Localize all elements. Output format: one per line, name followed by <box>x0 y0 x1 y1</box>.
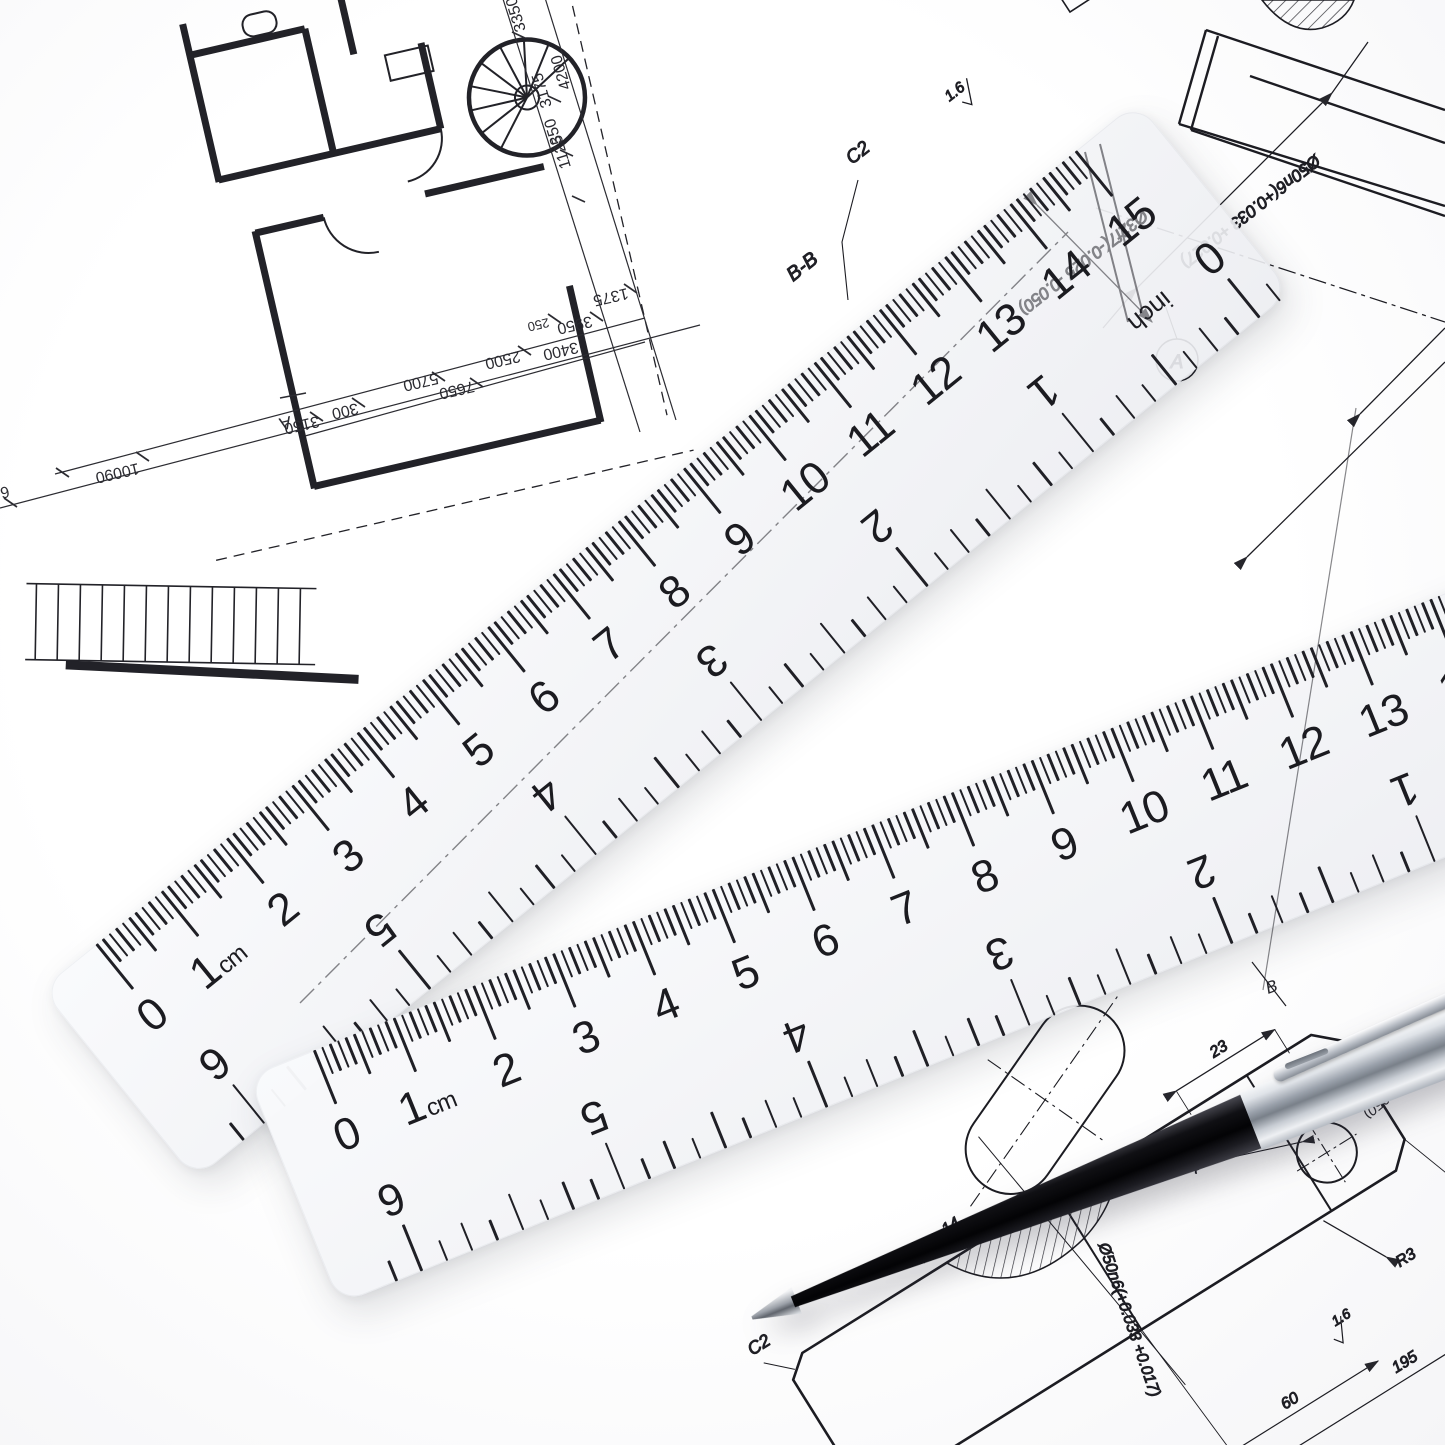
ruler-tick <box>672 905 690 946</box>
ruler-tick <box>206 854 226 878</box>
ruler-tick <box>605 531 625 555</box>
ruler-tick <box>905 288 925 312</box>
ruler-tick <box>507 1193 524 1230</box>
ruler-tick <box>1022 193 1042 217</box>
ruler-tick <box>726 719 742 738</box>
ruler-tick <box>918 277 938 301</box>
ruler-tick <box>481 631 501 655</box>
ruler-tick <box>187 869 207 893</box>
ruler-tick <box>272 801 292 825</box>
ruler-tick <box>840 341 860 365</box>
ruler-tick <box>1197 933 1208 954</box>
ruler-tick <box>1212 897 1233 944</box>
ruler-tick <box>494 621 514 645</box>
ruler-tick <box>1169 936 1183 965</box>
ruler-tick <box>872 314 892 338</box>
ruler-tick <box>657 489 677 513</box>
ruler-tick <box>565 563 585 587</box>
ruler-tick <box>435 668 455 692</box>
ruler-tick <box>807 367 827 391</box>
ruler-tick <box>1070 744 1088 785</box>
ruler-tick <box>526 594 546 618</box>
ruler-tick <box>539 1199 550 1220</box>
ruler-tick <box>539 584 559 608</box>
ruler-tick <box>409 690 429 714</box>
ruler-number: 0 <box>126 987 177 1043</box>
ruler-tick <box>827 351 847 375</box>
roughness-mark: 1.6 <box>1322 1305 1362 1346</box>
ruler-tick <box>357 732 395 779</box>
photo-scene: 3350 4200 3175 350 1125 1375 250 3950 34… <box>0 0 1445 1445</box>
ruler-tick <box>1198 327 1219 352</box>
ruler-number: 10 <box>770 451 840 522</box>
ruler-number: 4 <box>775 1007 818 1065</box>
ruler-number: 5 <box>724 945 766 1002</box>
ruler-tick <box>1310 647 1328 688</box>
ruler-tick <box>148 901 168 925</box>
ruler-tick <box>866 596 887 621</box>
ruler-tick <box>787 383 807 407</box>
ruler-tick <box>895 547 928 587</box>
ruler-tick <box>387 1260 398 1281</box>
ruler-number: 13 <box>966 292 1036 363</box>
dimension-label: 2500 <box>483 347 522 372</box>
ruler-tick <box>592 937 610 978</box>
ruler-tick <box>1299 892 1310 913</box>
ruler-tick <box>1016 198 1036 222</box>
ruler-tick <box>1010 979 1031 1026</box>
ruler-tick <box>343 743 363 767</box>
ruler-tick <box>533 589 553 613</box>
ruler-number: 14 <box>1031 239 1101 310</box>
ruler-tick <box>448 658 468 682</box>
ruler-number: 14 <box>1431 650 1445 716</box>
svg-text:1.6: 1.6 <box>1328 1305 1353 1329</box>
ruler-tick <box>246 822 266 846</box>
ruler-cm-unit: cm <box>212 940 252 980</box>
ruler-tick <box>951 251 971 275</box>
ruler-tick <box>1045 994 1056 1015</box>
ruler-number: 6 <box>518 670 569 726</box>
ruler-tick <box>640 1158 651 1179</box>
ruler-tick <box>975 518 991 537</box>
ruler-tick <box>1389 615 1407 656</box>
ruler-tick <box>1075 150 1113 197</box>
ruler-tick <box>317 764 337 788</box>
ruler-tick <box>774 394 794 418</box>
ruler-tick <box>865 1059 879 1088</box>
ruler-number: 1 <box>1383 761 1426 819</box>
ruler-tick <box>350 737 370 761</box>
dimension-label: 3350 <box>503 0 530 34</box>
ruler-tick <box>644 499 664 523</box>
ruler-number: 8 <box>964 848 1006 905</box>
ruler-tick <box>1224 317 1240 336</box>
dimension-label: 3400 <box>541 338 580 363</box>
dimension-label: 300 <box>330 399 360 422</box>
ruler-tick <box>135 912 155 936</box>
ruler-tick <box>590 1179 601 1200</box>
plan-dimension-lines <box>0 0 700 508</box>
ruler-tick <box>934 552 950 571</box>
ruler-tick <box>213 848 233 872</box>
ruler-tick <box>229 1122 245 1141</box>
ruler-tick <box>513 605 533 629</box>
ruler-number: 3 <box>565 1009 607 1066</box>
ruler-number: 0 <box>326 1106 368 1163</box>
ruler-tick <box>768 399 788 423</box>
ruler-tick <box>535 864 556 889</box>
ruler-tick <box>467 642 487 666</box>
ruler-tick <box>507 610 527 634</box>
ruler-tick <box>696 457 716 481</box>
ruler-tick <box>1248 913 1259 934</box>
ruler-tick <box>755 409 775 433</box>
ruler-tick <box>174 880 194 904</box>
ruler-tick <box>670 478 690 502</box>
ruler-tick <box>552 573 590 620</box>
ruler-tick <box>592 542 612 566</box>
ruler-tick <box>239 827 259 851</box>
ruler-number: 5 <box>573 1088 616 1146</box>
ruler-tick <box>866 320 886 344</box>
ruler-tick <box>461 647 481 671</box>
ruler-tick <box>729 431 749 455</box>
ruler-tick <box>1068 977 1082 1006</box>
ruler-tick <box>879 309 917 356</box>
ruler-tick <box>807 1060 828 1107</box>
ruler-tick <box>1400 851 1411 872</box>
ruler-tick <box>487 626 525 673</box>
ruler-tick <box>1270 895 1284 924</box>
ruler-tick <box>438 1240 449 1261</box>
ruler-tick <box>851 619 867 638</box>
ruler-tick <box>701 730 722 755</box>
ruler-tick <box>415 684 435 708</box>
ruler-tick <box>892 585 908 604</box>
ruler-tick <box>813 362 851 409</box>
ruler-tick <box>892 298 912 322</box>
ruler-tick <box>395 988 411 1007</box>
ruler-number: 12 <box>1271 715 1335 781</box>
ruler-tick <box>831 840 849 881</box>
ruler-tick <box>970 235 990 259</box>
ruler-tick <box>598 536 618 560</box>
ruler-tick <box>1227 278 1260 318</box>
ruler-tick <box>783 663 804 688</box>
ruler-tick <box>618 797 639 822</box>
ruler-tick <box>95 943 133 990</box>
ruler-tick <box>1068 156 1088 180</box>
ruler-tick <box>433 1002 451 1043</box>
ruler-tick <box>108 933 128 957</box>
dimension-label: 1375 <box>591 284 630 309</box>
ruler-tick <box>311 769 331 793</box>
ruler-tick <box>912 1030 929 1067</box>
ruler-tick <box>428 674 448 698</box>
ruler-tick <box>370 721 390 745</box>
ruler-tick <box>285 790 305 814</box>
ruler-tick <box>402 695 422 719</box>
ruler-tick <box>809 652 825 671</box>
svg-text:1.6: 1.6 <box>941 78 968 105</box>
ruler-tick <box>436 954 452 973</box>
ruler-number: 5 <box>453 723 504 779</box>
ruler-number: 2 <box>1180 843 1223 901</box>
ruler-number: 12 <box>900 345 970 416</box>
ruler-tick <box>564 815 597 855</box>
ruler-tick <box>141 906 161 930</box>
ruler-tick <box>1061 412 1094 452</box>
feature-control-frame: Ø0.02 <box>1050 0 1164 12</box>
dim-60-label: 60 <box>1278 1389 1302 1413</box>
ruler-number: 2 <box>485 1041 527 1098</box>
ruler-tick <box>637 505 657 529</box>
roughness-mark: 1.6 <box>941 74 981 114</box>
ruler-tick <box>546 579 566 603</box>
ruler-tick <box>519 887 535 906</box>
ruler-tick <box>252 817 272 841</box>
ruler-tick <box>353 1034 371 1075</box>
stair-flight-icon <box>25 584 316 665</box>
ruler-tick <box>1182 350 1198 369</box>
section-mark-a: A <box>277 412 293 434</box>
ruler-tick <box>219 843 239 867</box>
ruler-tick <box>991 776 1009 817</box>
ruler-tick <box>885 304 905 328</box>
ruler-tick <box>115 928 135 952</box>
ruler-tick <box>949 529 970 554</box>
ruler-tick <box>1016 484 1032 503</box>
ruler-tick <box>602 820 618 839</box>
ruler-tick <box>709 446 729 470</box>
dimension-label: 10090 <box>94 459 141 486</box>
dim-23-label: 23 <box>1206 1038 1231 1062</box>
ruler-number: 3 <box>322 829 373 885</box>
ruler-tick <box>1055 166 1075 190</box>
ruler-number: 1cm <box>179 924 255 1000</box>
ruler-number: 9 <box>714 511 765 567</box>
ruler-tick <box>1349 872 1360 893</box>
ruler-tick <box>180 875 200 899</box>
dimension-label: 7650 <box>437 377 476 402</box>
ruler-tick <box>561 1181 575 1210</box>
ruler-tick <box>859 325 879 349</box>
ruler-tick <box>748 415 786 462</box>
ruler-number: 6 <box>804 912 846 969</box>
ruler-number: 10 <box>1112 779 1176 845</box>
ruler-tick <box>663 483 683 507</box>
ruler-tick <box>1096 974 1107 995</box>
radius-label: R3 <box>1393 1245 1419 1270</box>
ruler-tick <box>512 969 530 1010</box>
ruler-number: 3 <box>978 925 1021 983</box>
ruler-tick <box>1062 161 1082 185</box>
ruler-tick <box>488 1219 499 1240</box>
ruler-number: 11 <box>1193 747 1254 812</box>
chamfer-label: C2 <box>842 137 874 169</box>
ruler-tick <box>452 931 473 956</box>
ruler-tick <box>398 949 431 989</box>
ruler-tick <box>663 1140 677 1169</box>
ruler-tick <box>833 346 853 370</box>
ruler-tick <box>330 753 350 777</box>
ruler-tick <box>996 214 1016 238</box>
ruler-tick <box>441 663 461 687</box>
ruler-tick <box>985 488 1011 520</box>
pen-tip <box>747 1287 802 1331</box>
ruler-number: 11 <box>836 399 903 468</box>
ruler-number: 4 <box>645 977 687 1034</box>
ruler-tick <box>735 425 755 449</box>
ruler-tick <box>768 686 784 705</box>
ruler-tick <box>488 891 514 923</box>
ruler-tick <box>742 1117 753 1138</box>
ruler-tick <box>911 808 929 849</box>
ruler-tick <box>1035 182 1055 206</box>
hatched-section <box>1262 0 1354 29</box>
ruler-tick <box>691 1138 702 1159</box>
ruler-number: 1cm <box>391 1067 462 1136</box>
ruler-tick <box>154 896 174 920</box>
ruler-tick <box>1029 187 1049 211</box>
ruler-number: 4 <box>387 776 438 832</box>
ruler-tick <box>1058 451 1074 470</box>
ruler-tick <box>729 681 762 721</box>
ruler-tick <box>792 1097 803 1118</box>
ruler-tick <box>722 436 742 460</box>
ruler-tick <box>278 795 298 819</box>
ruler-tick <box>578 552 598 576</box>
ruler-tick <box>402 1224 423 1271</box>
ruler-tick <box>689 462 709 486</box>
ruler-inch-unit: inch <box>1122 285 1179 339</box>
ruler-tick <box>474 637 494 661</box>
ruler-tick <box>200 859 220 883</box>
ruler-number: 7 <box>884 880 926 937</box>
dimension-label: 250 <box>526 315 551 334</box>
section-label-bb: B-B <box>783 248 823 286</box>
ruler-tick <box>1003 209 1023 233</box>
ruler-tick <box>764 1099 778 1128</box>
ruler-tick <box>422 679 460 726</box>
ruler-tick <box>924 272 944 296</box>
ruler-tick <box>376 716 396 740</box>
ruler-tick <box>383 711 403 735</box>
ruler-tick <box>102 938 122 962</box>
ruler-tick <box>643 787 659 806</box>
ruler-number: 6 <box>370 1170 413 1228</box>
ruler-tick <box>559 568 579 592</box>
ruler-tick <box>853 330 873 354</box>
ruler-tick <box>396 700 416 724</box>
ruler-tick <box>742 420 762 444</box>
ruler-tick <box>685 753 701 772</box>
ruler-tick <box>611 526 631 550</box>
ruler-tick <box>710 1112 727 1149</box>
ruler-tick <box>500 616 520 640</box>
ruler-tick <box>819 622 845 654</box>
shaft-tolerance-label: Ø50n6(+0.033 +0.017) <box>1094 1240 1163 1400</box>
ruler-tick <box>298 780 318 804</box>
ruler-tick <box>572 557 592 581</box>
ruler-tick <box>1099 417 1115 436</box>
ruler-tick <box>122 922 142 946</box>
ruler-tick <box>363 727 383 751</box>
ruler-tick <box>676 473 696 497</box>
ruler-tick <box>1032 461 1053 486</box>
ruler-tick <box>820 357 840 381</box>
ruler-tick <box>702 452 722 476</box>
ruler-tick <box>944 256 982 303</box>
ruler-tick <box>161 891 199 938</box>
ruler-tick <box>967 1018 981 1047</box>
ruler-tick <box>460 1222 474 1251</box>
ruler-number: 9 <box>1043 816 1085 873</box>
ruler-tick <box>1141 384 1157 403</box>
ruler-tick <box>898 293 918 317</box>
ruler-cm-unit: cm <box>422 1086 460 1122</box>
ruler-tick <box>1230 679 1248 720</box>
ruler-number: 13 <box>1351 682 1415 748</box>
ruler-tick <box>1147 953 1158 974</box>
ruler-tick <box>653 757 679 789</box>
ruler-tick <box>995 1015 1006 1036</box>
ruler-tick <box>1265 283 1281 302</box>
ruler-tick <box>232 832 252 856</box>
ruler-tick <box>761 404 781 428</box>
ruler-tick <box>751 873 769 914</box>
ruler-tick <box>1150 712 1168 753</box>
ruler-tick <box>1318 866 1335 903</box>
ruler-number: 2 <box>257 881 308 937</box>
ruler-number: 15 <box>1096 187 1166 258</box>
ruler-tick <box>990 219 1010 243</box>
ruler-tick <box>337 748 357 772</box>
dimension-label: 3175 <box>529 71 556 110</box>
ruler-tick <box>478 921 494 940</box>
ruler-tick <box>894 1056 905 1077</box>
ruler-tick <box>1372 854 1386 883</box>
ruler-tick <box>794 378 814 402</box>
ruler-tick <box>964 240 984 264</box>
ruler-number: 7 <box>583 617 634 673</box>
ruler-tick <box>957 246 977 270</box>
ruler-tick <box>683 468 721 515</box>
ruler-tick <box>944 1035 955 1056</box>
ruler-tick <box>843 1076 854 1097</box>
ruler-tick <box>624 515 644 539</box>
ruler-tick <box>931 267 951 291</box>
ruler-tick <box>938 261 958 285</box>
ruler-tick <box>618 520 656 567</box>
ruler-tick <box>1048 172 1068 196</box>
ruler-tick <box>1115 948 1132 985</box>
dimension-label: 5700 <box>401 369 440 394</box>
ruler-tick <box>1151 354 1177 386</box>
ruler-tick <box>560 854 576 873</box>
ruler-number: 8 <box>649 564 700 620</box>
ruler-tick <box>265 806 285 830</box>
ruler-tick <box>1415 815 1436 862</box>
ruler-tick <box>167 885 187 909</box>
ruler-tick <box>1115 394 1136 419</box>
ruler-tick <box>800 372 820 396</box>
ruler-tick <box>304 774 324 798</box>
ruler-tick <box>605 1142 626 1189</box>
ruler-tick <box>631 510 651 534</box>
ruler-tick <box>983 224 1003 248</box>
